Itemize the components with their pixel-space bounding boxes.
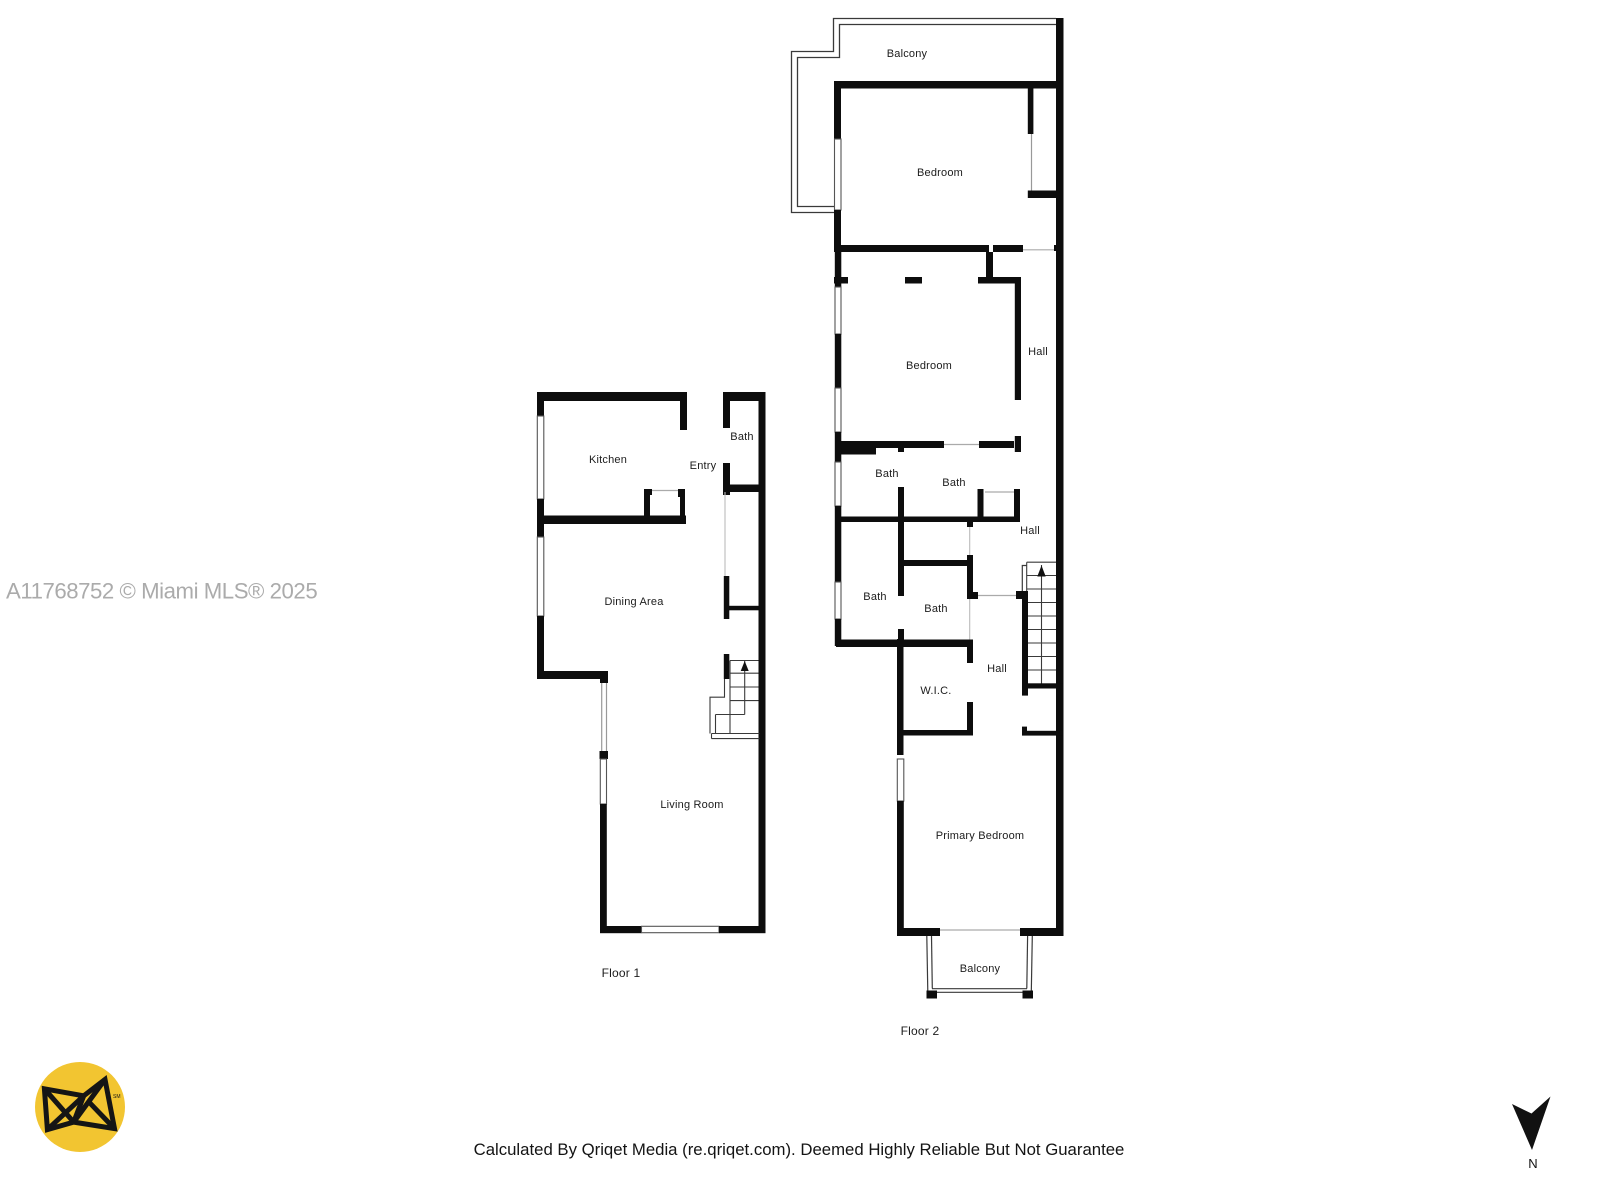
svg-text:Hall: Hall	[1028, 346, 1048, 358]
svg-text:Bath: Bath	[875, 468, 898, 480]
svg-text:Floor 1: Floor 1	[602, 966, 641, 980]
svg-text:Bath: Bath	[863, 591, 886, 603]
svg-text:Bedroom: Bedroom	[906, 360, 952, 372]
svg-text:Kitchen: Kitchen	[589, 454, 627, 466]
svg-text:Floor 2: Floor 2	[901, 1024, 940, 1038]
svg-text:Bedroom: Bedroom	[917, 167, 963, 179]
svg-text:Entry: Entry	[690, 460, 717, 472]
svg-text:Calculated By Qriqet Media (re: Calculated By Qriqet Media (re.qriqet.co…	[474, 1140, 1125, 1159]
svg-text:Hall: Hall	[987, 663, 1007, 675]
svg-text:Balcony: Balcony	[960, 963, 1001, 975]
svg-text:Living Room: Living Room	[660, 799, 723, 811]
svg-text:N: N	[1528, 1156, 1537, 1171]
svg-text:Hall: Hall	[1020, 525, 1040, 537]
svg-text:W.I.C.: W.I.C.	[920, 685, 951, 697]
svg-text:Bath: Bath	[924, 603, 947, 615]
svg-text:Bath: Bath	[942, 477, 965, 489]
svg-text:Balcony: Balcony	[887, 48, 928, 60]
svg-text:SM: SM	[113, 1094, 121, 1100]
svg-text:A11768752 © Miami MLS® 2025: A11768752 © Miami MLS® 2025	[6, 579, 317, 604]
svg-text:Dining Area: Dining Area	[604, 596, 664, 608]
svg-text:Bath: Bath	[730, 431, 753, 443]
svg-text:Primary Bedroom: Primary Bedroom	[936, 830, 1025, 842]
